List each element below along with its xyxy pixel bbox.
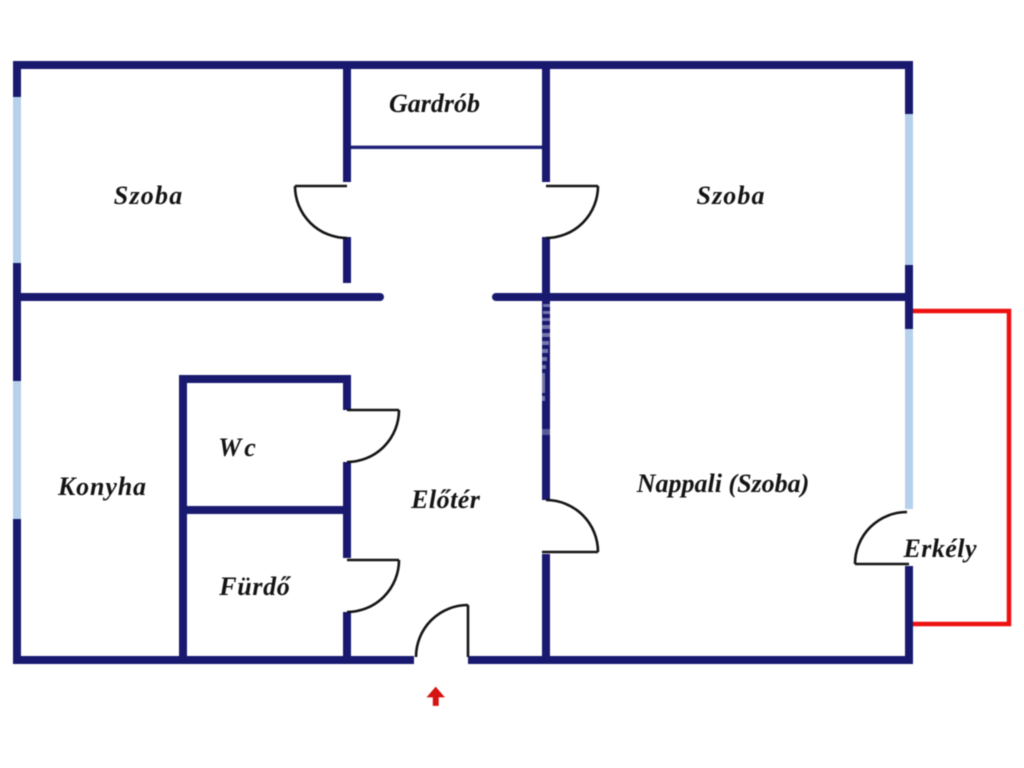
svg-text:Erkély: Erkély bbox=[903, 534, 977, 563]
svg-text:Szoba: Szoba bbox=[697, 181, 765, 210]
svg-text:Konyha: Konyha bbox=[57, 472, 146, 501]
svg-text:Wc: Wc bbox=[218, 433, 256, 462]
svg-text:Előtér: Előtér bbox=[410, 485, 481, 514]
svg-text:Szoba: Szoba bbox=[114, 181, 183, 210]
svg-text:Nappali (Szoba): Nappali (Szoba) bbox=[636, 469, 810, 498]
svg-text:Fürdő: Fürdő bbox=[218, 572, 292, 601]
svg-text:Gardrób: Gardrób bbox=[389, 89, 480, 118]
